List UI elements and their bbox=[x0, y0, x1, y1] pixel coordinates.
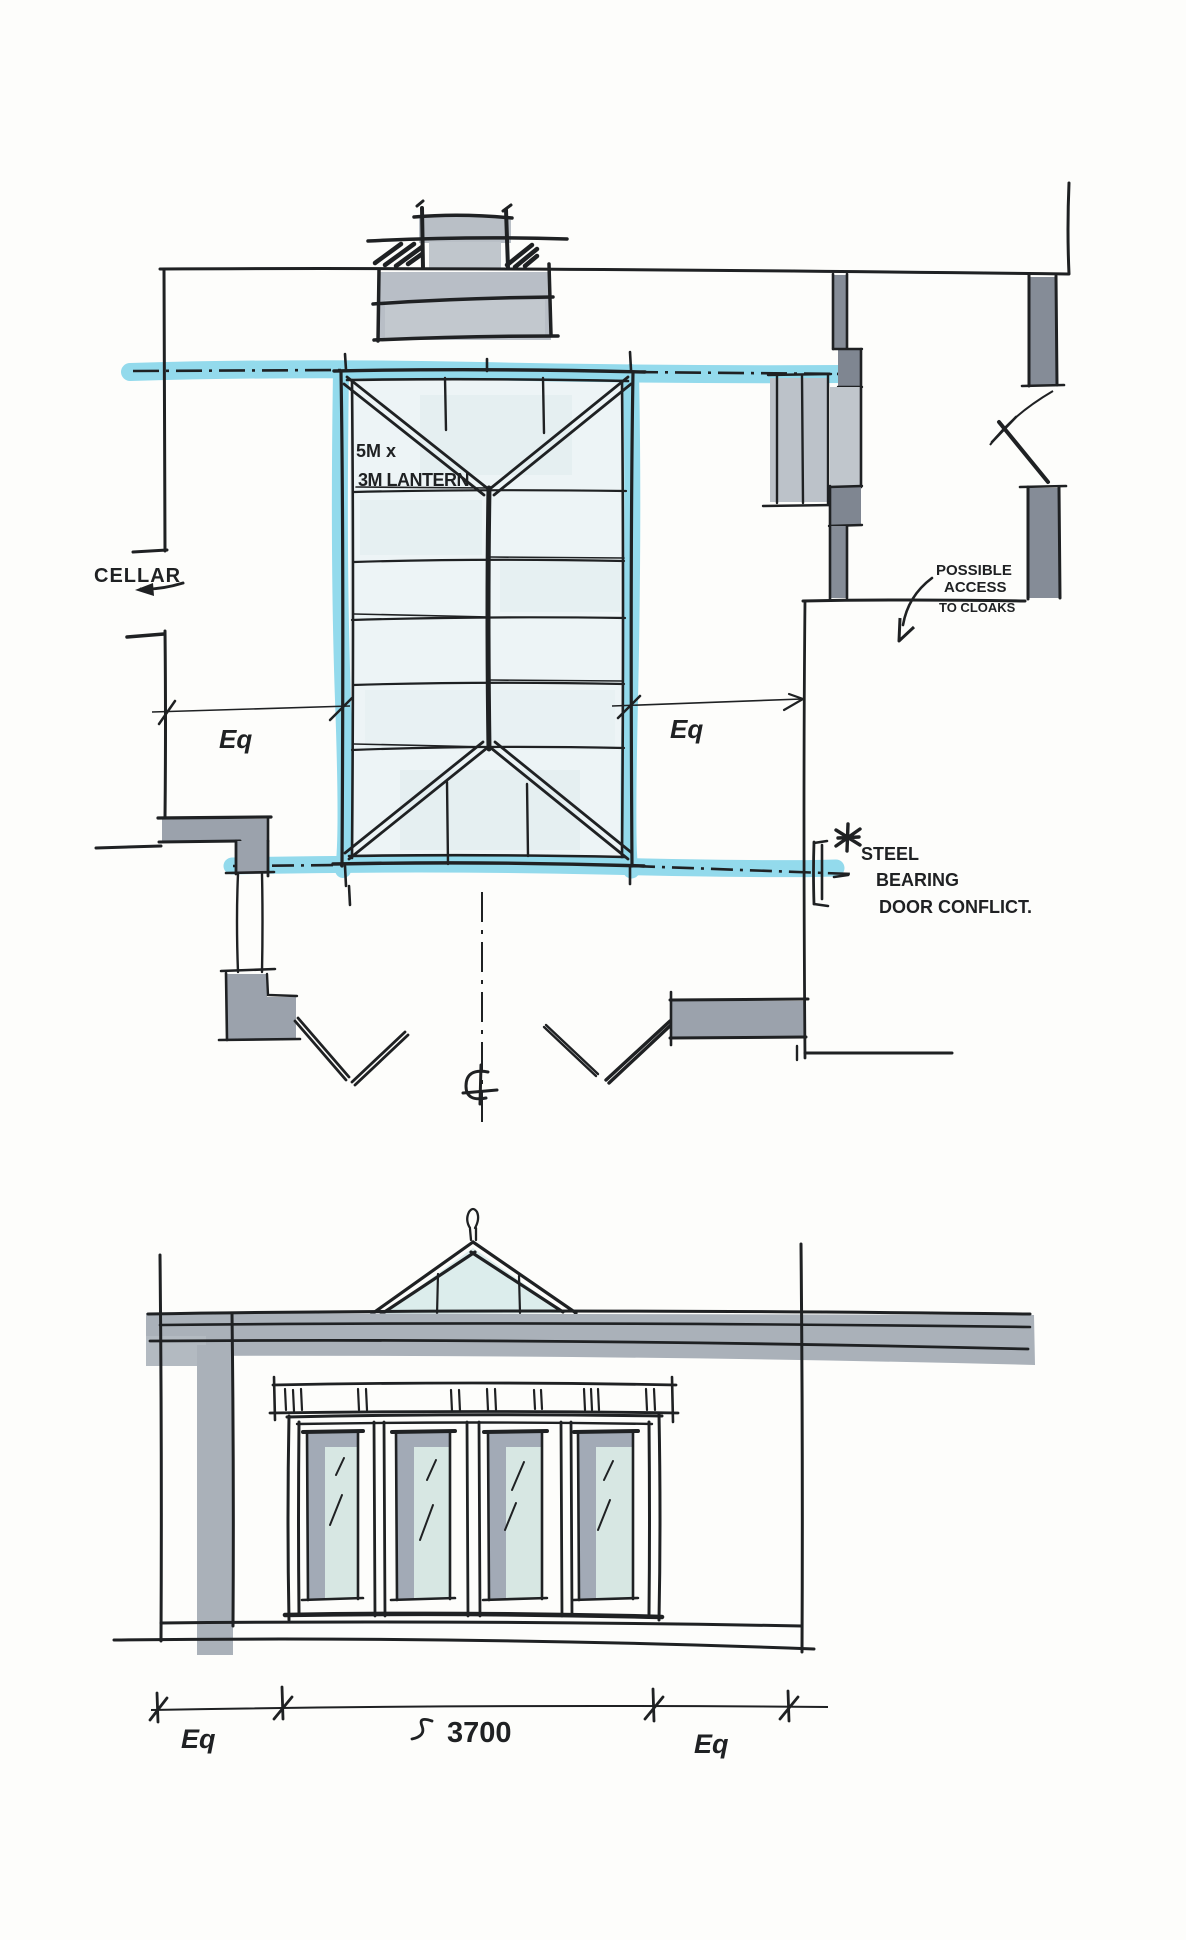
svg-text:BEARING: BEARING bbox=[876, 870, 959, 890]
svg-text:ACCESS: ACCESS bbox=[944, 579, 1007, 596]
svg-text:5M x: 5M x bbox=[356, 441, 396, 461]
svg-text:POSSIBLE: POSSIBLE bbox=[936, 562, 1012, 579]
svg-text:DOOR CONFLICT.: DOOR CONFLICT. bbox=[879, 897, 1032, 917]
svg-text:Eq: Eq bbox=[181, 1724, 216, 1754]
svg-text:CELLAR: CELLAR bbox=[94, 565, 181, 587]
svg-text:Eq: Eq bbox=[694, 1729, 729, 1759]
svg-text:TO CLOAKS: TO CLOAKS bbox=[939, 600, 1016, 615]
svg-text:Eq: Eq bbox=[670, 714, 703, 744]
svg-text:Eq: Eq bbox=[219, 724, 252, 754]
svg-text:STEEL: STEEL bbox=[861, 844, 919, 864]
svg-text:3700: 3700 bbox=[447, 1717, 512, 1749]
svg-text:3M LANTERN: 3M LANTERN bbox=[358, 470, 469, 490]
